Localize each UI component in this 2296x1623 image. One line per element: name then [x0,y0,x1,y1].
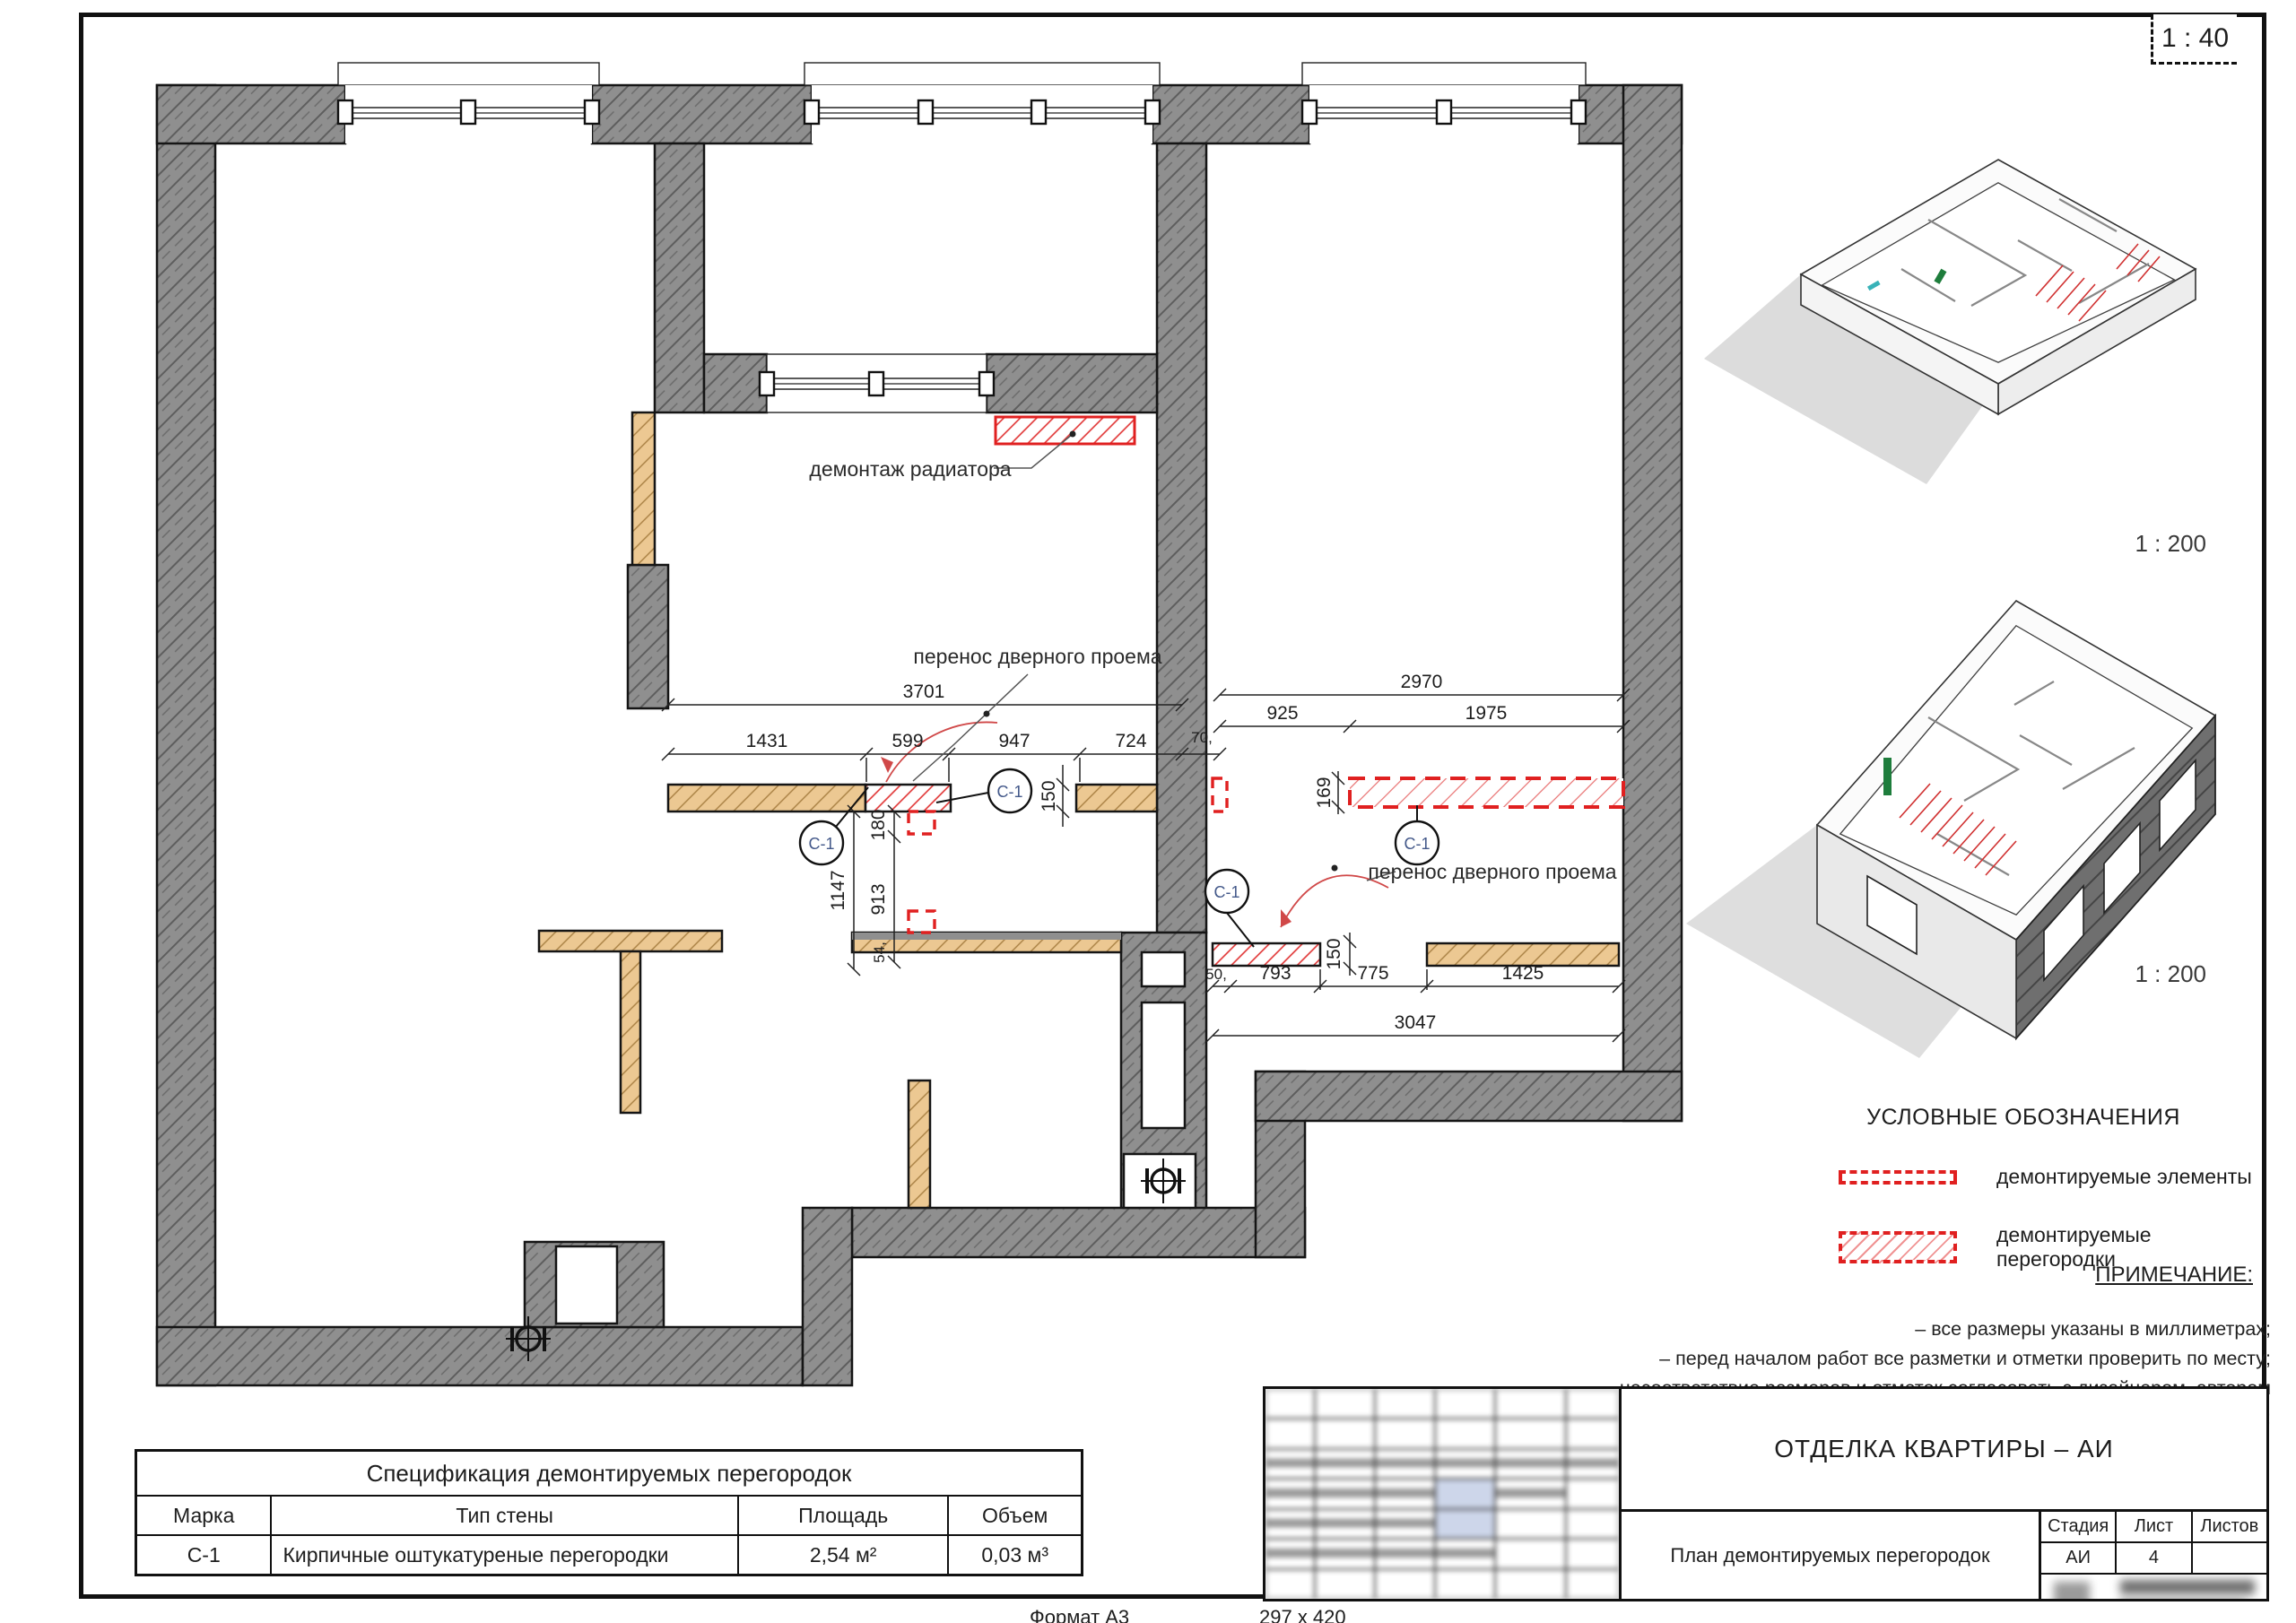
spec-table-title: Спецификация демонтируемых перегородок [136,1451,1083,1497]
title-block-stamp-blurred [1265,1389,1622,1599]
dim-947: 947 [998,731,1030,751]
sheet-label: Лист [2117,1512,2192,1541]
label-radiator-demolition: демонтаж радиатора [809,457,1011,481]
dim-2970: 2970 [1401,672,1443,692]
stamp-grid [1265,1389,1619,1599]
notes-title: ПРИМЕЧАНИЕ: [2045,1263,2253,1288]
spec-col-mark: Марка [136,1496,272,1535]
legend: УСЛОВНЫЕ ОБОЗНАЧЕНИЯ демонтируемые элеме… [1776,1105,2271,1271]
axon-bottom-scale: 1 : 200 [2135,960,2206,987]
spec-col-type: Тип стены [271,1496,737,1535]
dim-3701: 3701 [903,681,945,702]
partition-plaster-edge [852,933,1121,940]
window-top-right [1302,63,1586,143]
dim-775: 775 [1357,963,1388,984]
dim-1431: 1431 [746,731,788,751]
c1-marker-4: С-1 [1213,883,1239,901]
spec-row-type: Кирпичные оштукатуреные перегородки [271,1535,737,1575]
stage-value: АИ [2041,1543,2117,1573]
dim-150a: 150 [1039,780,1059,811]
axonometric-view-bottom: 1 : 200 [1686,601,2215,1058]
sheet-value: 4 [2117,1543,2192,1573]
door-swing-arcs [881,722,1388,927]
project-title: ОТДЕЛКА КВАРТИРЫ – АИ [1622,1389,2266,1512]
dim-1425: 1425 [1502,963,1544,984]
demolished-partition-1975 [1350,778,1623,807]
title-block-right: ОТДЕЛКА КВАРТИРЫ – АИ План демонтируемых… [1622,1389,2266,1599]
sheets-value [2193,1543,2266,1573]
dim-50: 50, [1205,966,1227,983]
axonometric-view-top: 1 : 200 [1704,160,2206,557]
label-door-move-right: перенос дверного проема [1368,860,1616,883]
c1-marker-2: С-1 [996,783,1022,801]
dim-54: 54, [871,942,888,963]
drawing-title: План демонтируемых перегородок [1622,1512,2039,1599]
note-line-2: – перед началом работ все разметки и отм… [1578,1344,2271,1374]
dim-1975: 1975 [1465,703,1508,724]
legend-item-elements: демонтируемые элементы [1776,1165,2271,1189]
dim-724: 724 [1115,731,1146,751]
dim-70: 70, [1191,729,1213,746]
legend-title: УСЛОВНЫЕ ОБОЗНАЧЕНИЯ [1776,1105,2271,1131]
title-block: ОТДЕЛКА КВАРТИРЫ – АИ План демонтируемых… [1263,1386,2269,1601]
dim-150b: 150 [1324,938,1344,969]
c1-marker-3: С-1 [1404,835,1430,853]
dim-925: 925 [1266,703,1298,724]
spec-col-volume: Объем [948,1496,1082,1535]
window-top-middle [804,63,1160,143]
dim-180: 180 [868,809,889,840]
spec-col-area: Площадь [738,1496,948,1535]
dim-169: 169 [1314,777,1335,808]
stage-label: Стадия [2041,1512,2117,1541]
spec-row-area: 2,54 м² [738,1535,948,1575]
label-door-move-left: перенос дверного проема [913,645,1161,668]
dim-793: 793 [1259,963,1291,984]
glazed-inner-opening [760,354,994,412]
spec-row-volume: 0,03 м³ [948,1535,1082,1575]
sheets-label: Листов [2193,1512,2266,1541]
format-label: Формат А3 [1030,1606,1129,1623]
dim-3047: 3047 [1395,1012,1437,1033]
title-block-meta: Стадия Лист Листов АИ 4 [2039,1512,2266,1599]
window-top-left [338,63,599,143]
plan-annotations: демонтаж радиатора перенос дверного прое… [809,431,1616,884]
legend-item-elements-label: демонтируемые элементы [1996,1165,2252,1189]
c1-marker-1: С-1 [808,835,834,853]
demolished-elements-icon [1839,1170,1957,1185]
note-line-1: – все размеры указаны в миллиметрах; [1578,1315,2271,1344]
logo-blurred [2041,1575,2266,1599]
drawing-sheet: 1 : 40 [0,0,2296,1623]
axon-top-scale: 1 : 200 [2135,530,2206,557]
spec-table: Спецификация демонтируемых перегородок М… [135,1449,1083,1576]
dim-599: 599 [891,731,923,751]
dim-1147: 1147 [828,870,848,910]
demolished-partitions-icon [1839,1231,1957,1263]
dim-913: 913 [868,883,889,915]
paper-size-label: 297 х 420 [1259,1606,1346,1623]
spec-row-mark: С-1 [136,1535,272,1575]
